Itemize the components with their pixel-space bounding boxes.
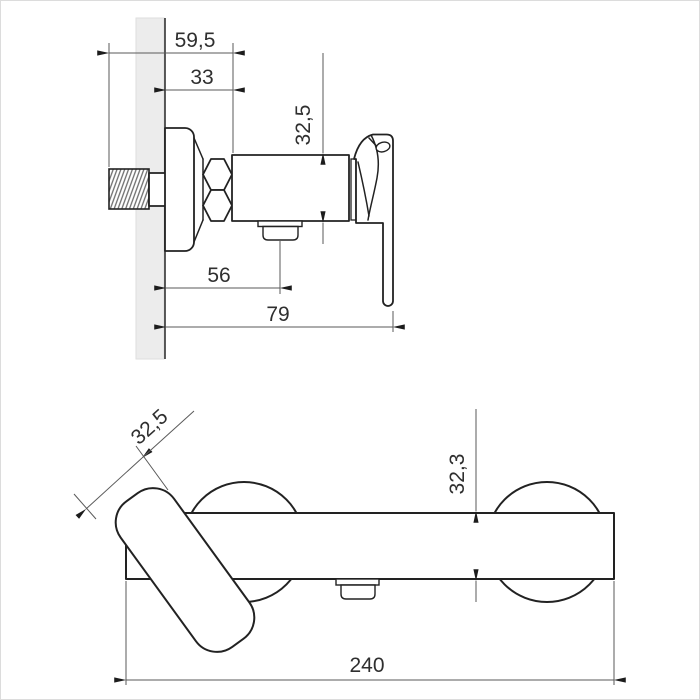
- dim-label-body-height: 32,5: [292, 105, 315, 146]
- valve-body: [232, 155, 349, 221]
- outlet-connector-front: [341, 585, 375, 599]
- threaded-tailpiece: [109, 169, 149, 209]
- dim-label-wall-to-body: 33: [190, 66, 213, 89]
- outlet-lip-front: [336, 579, 379, 585]
- dim-label-overall-width: 240: [349, 654, 384, 677]
- flange-taper-bottom: [194, 220, 203, 242]
- ext-line-handle-upper: [136, 446, 168, 490]
- dim-label-bar-height: 32,3: [446, 454, 469, 495]
- dim-label-tail-depth: 59,5: [175, 29, 216, 52]
- dim-label-handle-diameter: 32,5: [127, 405, 173, 449]
- hex-nut-lower: [203, 190, 232, 221]
- lever-handle-side: [354, 135, 393, 307]
- side-view: 59,5 33 32,5 56 79: [109, 18, 393, 359]
- dim-label-wall-to-handle: 79: [266, 303, 289, 326]
- escutcheon-flange: [165, 128, 194, 251]
- technical-drawing-canvas: 59,5 33 32,5 56 79 32,5: [0, 0, 700, 700]
- ext-line-handle-lower: [74, 494, 96, 519]
- pipe-shank: [149, 173, 166, 206]
- front-view: 32,5 32,3 240: [74, 405, 614, 685]
- flange-taper-top: [194, 138, 203, 159]
- dim-label-wall-to-outlet: 56: [207, 264, 230, 287]
- hex-nut-upper: [203, 159, 232, 190]
- mixer-dimension-drawing: 59,5 33 32,5 56 79 32,5: [1, 1, 700, 700]
- outlet-lip: [258, 221, 302, 227]
- outlet-connector: [263, 227, 298, 241]
